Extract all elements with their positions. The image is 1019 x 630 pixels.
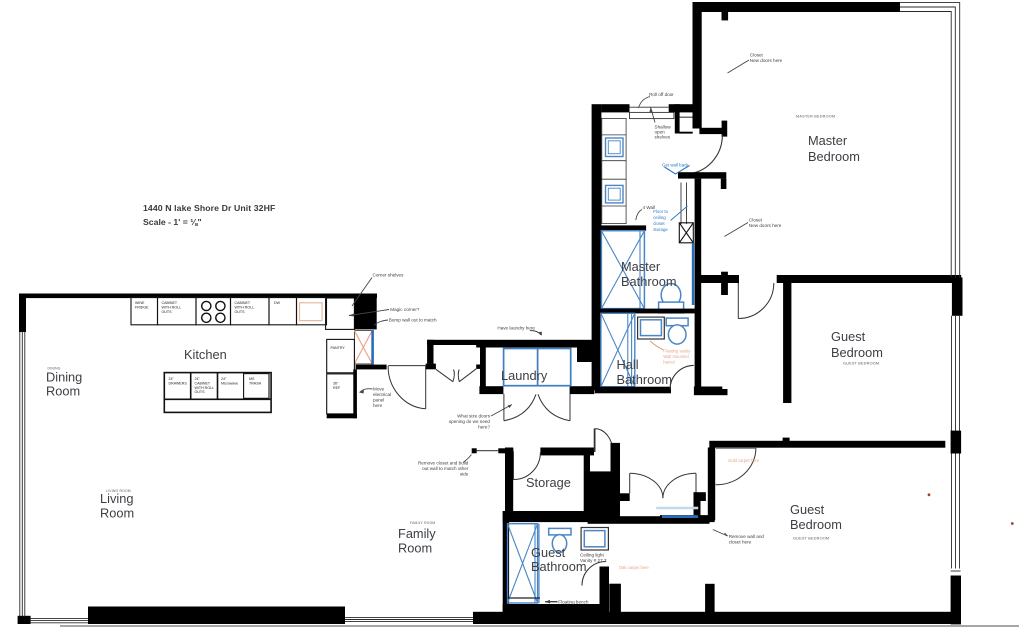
svg-text:24": 24" (169, 377, 175, 381)
svg-text:Remove wall and: Remove wall and (729, 534, 765, 539)
svg-text:panel: panel (373, 398, 384, 403)
svg-text:GUEST BEDROOM: GUEST BEDROOM (793, 537, 829, 541)
svg-text:WINE: WINE (135, 301, 145, 305)
svg-text:Guest: Guest (531, 545, 566, 560)
svg-text:storage: storage (653, 227, 668, 232)
svg-text:Kitchen: Kitchen (184, 347, 227, 362)
svg-text:Move: Move (373, 387, 385, 392)
svg-text:Floating bench: Floating bench (558, 600, 589, 605)
svg-text:ceiling: ceiling (653, 215, 666, 220)
svg-text:New doors here: New doors here (749, 223, 782, 228)
svg-text:side: side (460, 472, 469, 477)
svg-text:Floor to: Floor to (653, 209, 668, 214)
svg-text:here?: here? (478, 425, 490, 430)
svg-text:OUTS: OUTS (162, 310, 173, 314)
svg-text:Gold carpet here: Gold carpet here (728, 458, 760, 463)
svg-text:Living: Living (100, 491, 133, 506)
svg-text:Bedroom: Bedroom (831, 345, 883, 360)
svg-text:Hall: Hall (617, 357, 639, 372)
svg-text:DRAWERS: DRAWERS (169, 381, 188, 385)
svg-text:Room: Room (46, 384, 80, 399)
svg-text:Remove closet and build: Remove closet and build (418, 461, 469, 466)
svg-text:Storage: Storage (526, 475, 571, 490)
svg-text:OUTS: OUTS (195, 390, 206, 394)
svg-text:Dining: Dining (46, 370, 82, 385)
svg-text:Corner shelves: Corner shelves (373, 273, 405, 278)
svg-text:closet here: closet here (729, 540, 752, 545)
svg-text:shelves: shelves (655, 135, 671, 140)
svg-text:Magic corner?: Magic corner? (390, 307, 420, 312)
svg-text:Guest: Guest (831, 329, 866, 344)
svg-text:Get wall back: Get wall back (662, 163, 689, 168)
svg-text:TRASH: TRASH (249, 381, 262, 385)
svg-text:FAMILY ROOM: FAMILY ROOM (410, 521, 435, 525)
svg-text:Ceiling light: Ceiling light (580, 553, 604, 558)
svg-text:Microwave: Microwave (221, 381, 238, 385)
svg-text:Room: Room (100, 506, 134, 521)
svg-text:Master: Master (808, 133, 848, 148)
svg-text:Vanity # 27 3: Vanity # 27 3 (580, 558, 607, 563)
svg-text:New doors here: New doors here (750, 58, 783, 63)
svg-text:opening do we need: opening do we need (449, 419, 491, 424)
svg-text:GUEST BEDROOM: GUEST BEDROOM (843, 362, 879, 366)
svg-text:Bathroom: Bathroom (531, 559, 586, 574)
svg-text:Bump wall out to match: Bump wall out to match (389, 317, 437, 322)
svg-text:WITH ROLL: WITH ROLL (195, 386, 215, 390)
svg-text:Closet: Closet (749, 218, 763, 223)
svg-text:DW: DW (274, 301, 281, 305)
svg-text:WITH ROLL: WITH ROLL (235, 305, 255, 309)
svg-text:Bedroom: Bedroom (808, 149, 860, 164)
svg-text:electrical: electrical (373, 392, 391, 397)
svg-text:Scale - 1' = ⅛": Scale - 1' = ⅛" (143, 217, 202, 227)
svg-text:OUTS: OUTS (235, 310, 246, 314)
svg-text:Guest: Guest (790, 502, 825, 517)
svg-text:Wall mounted: Wall mounted (663, 354, 689, 359)
svg-text:Laundry: Laundry (501, 368, 548, 383)
svg-text:CABINET: CABINET (235, 301, 251, 305)
svg-text:MASTER BEDROOM: MASTER BEDROOM (796, 115, 835, 119)
svg-text:Master: Master (621, 259, 661, 274)
svg-text:WITH ROLL: WITH ROLL (162, 305, 182, 309)
svg-text:Roll off door: Roll off door (649, 92, 674, 97)
svg-text:FRIDGE: FRIDGE (135, 305, 149, 309)
svg-text:Bathroom: Bathroom (617, 372, 672, 387)
svg-text:here: here (373, 403, 383, 408)
svg-text:REF: REF (333, 386, 341, 390)
svg-text:closet: closet (653, 221, 665, 226)
svg-text:Have laundry here: Have laundry here (497, 326, 535, 331)
svg-text:CABINET: CABINET (162, 301, 178, 305)
svg-text:MS: MS (249, 377, 255, 381)
svg-text:CABINET: CABINET (195, 381, 211, 385)
svg-text:Oak carpet here: Oak carpet here (619, 565, 650, 570)
svg-text:1440 N lake Shore Dr Unit 32HF: 1440 N lake Shore Dr Unit 32HF (143, 203, 275, 213)
svg-text:24": 24" (221, 377, 227, 381)
svg-text:Bathroom: Bathroom (621, 274, 676, 289)
svg-text:36": 36" (333, 382, 339, 386)
svg-text:Room: Room (398, 541, 432, 556)
svg-text:PANTRY: PANTRY (331, 346, 346, 350)
svg-text:24": 24" (195, 377, 201, 381)
svg-text:What size doors: What size doors (457, 414, 491, 419)
svg-text:faucet: faucet (663, 360, 675, 365)
svg-text:Family: Family (398, 526, 436, 541)
svg-text:Bedroom: Bedroom (790, 517, 842, 532)
svg-text:Floating vanity: Floating vanity (663, 349, 691, 354)
svg-text:out wall to match other: out wall to match other (422, 466, 469, 471)
svg-text:Closet: Closet (750, 53, 764, 58)
